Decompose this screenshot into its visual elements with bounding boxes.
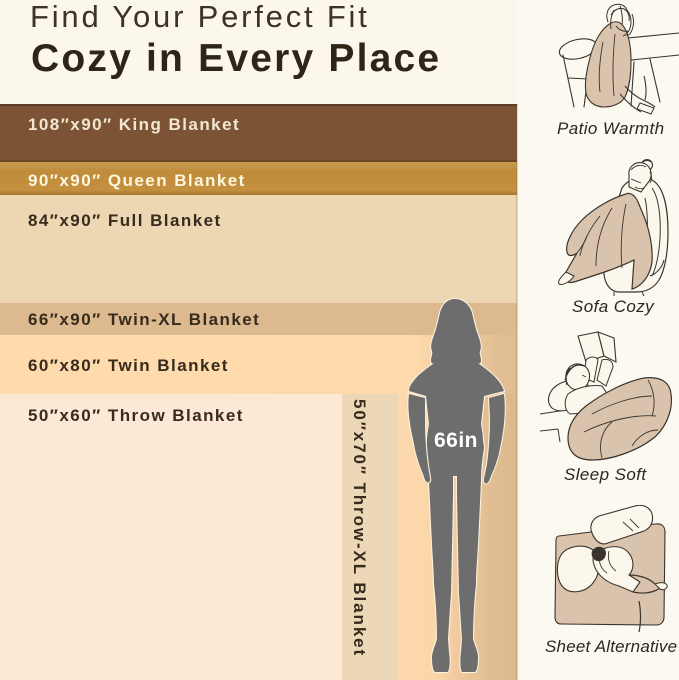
svg-text:66in: 66in	[434, 429, 478, 452]
